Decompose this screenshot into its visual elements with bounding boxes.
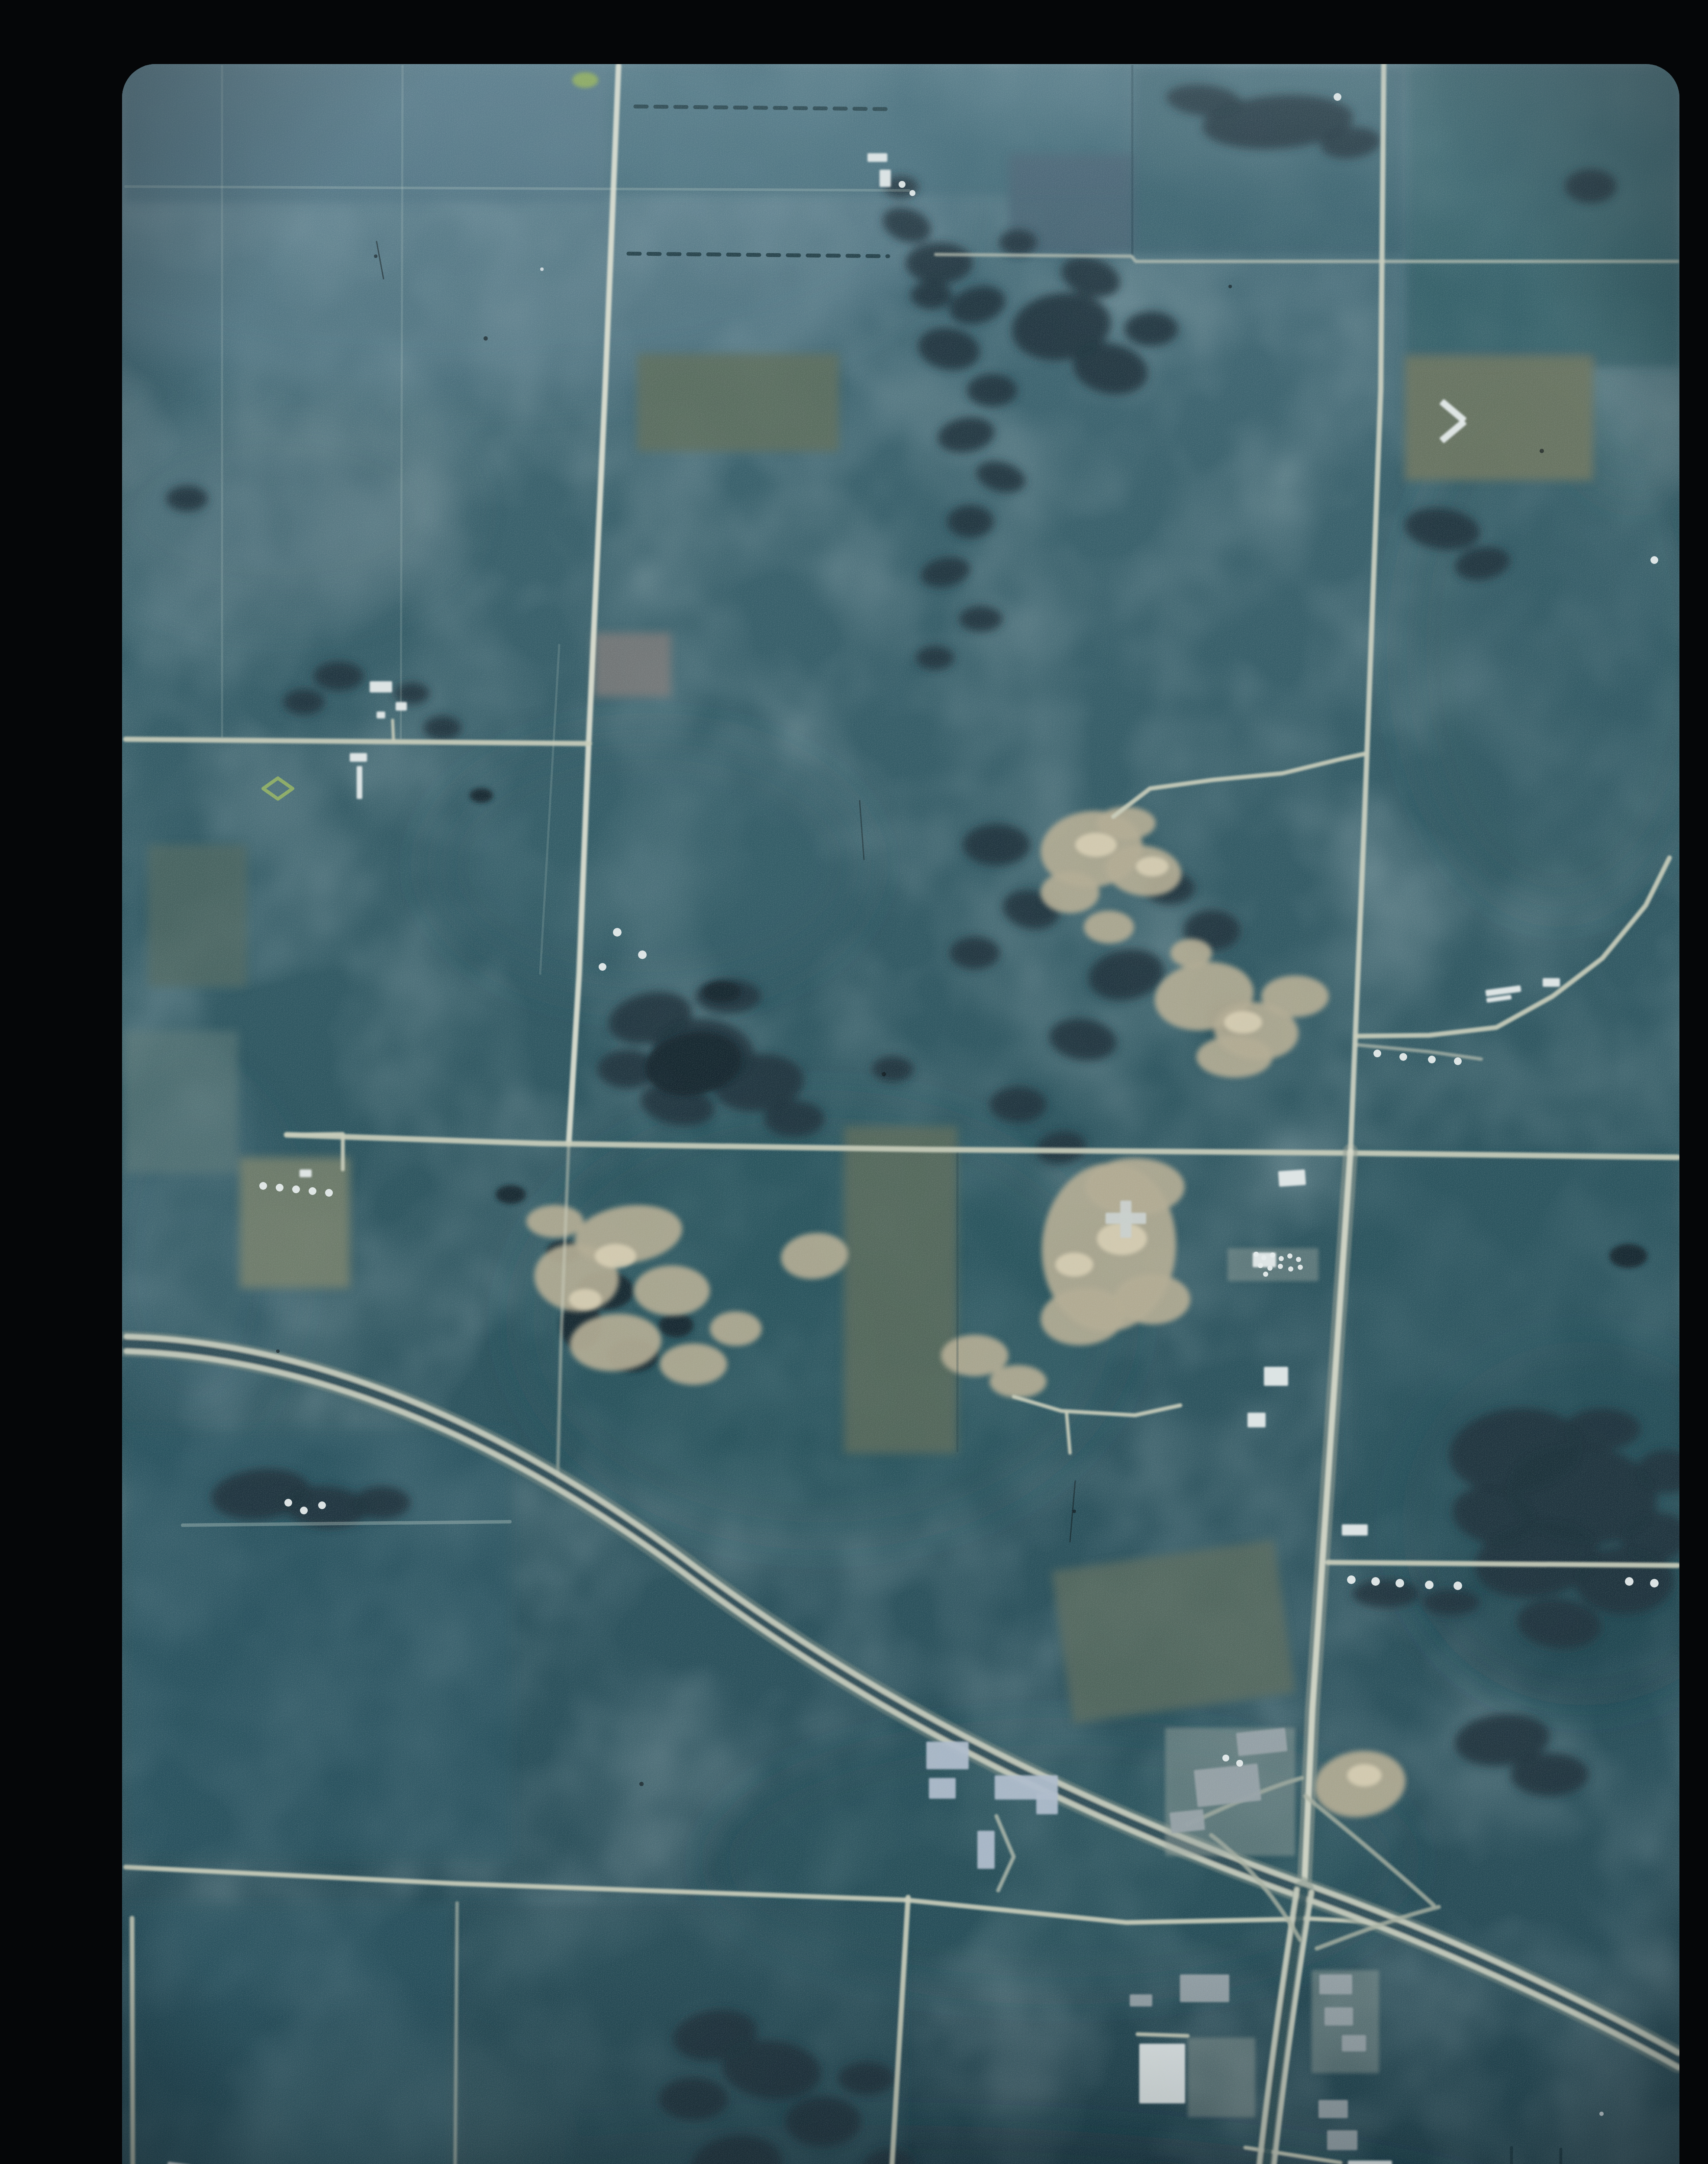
photo-emulsion (0, 13, 1708, 2164)
top-flare (122, 64, 1679, 2164)
slide-scan (0, 0, 1708, 2164)
aerial-photograph (0, 0, 1708, 2164)
